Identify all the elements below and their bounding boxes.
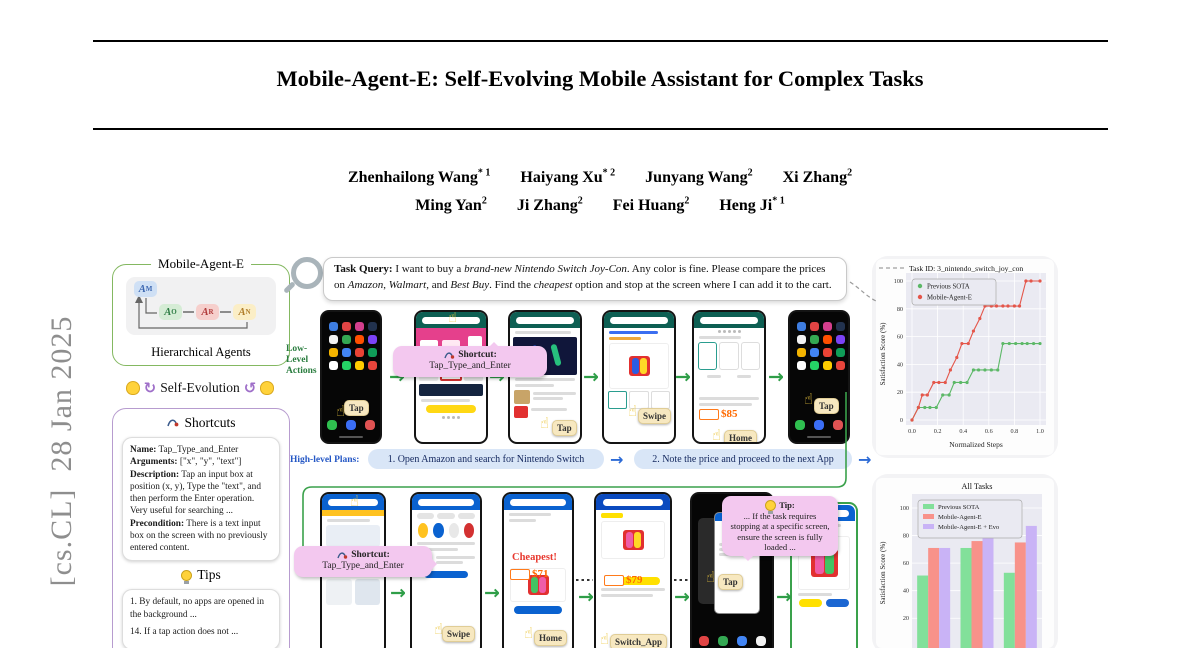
chart-title: All Tasks <box>962 482 993 491</box>
hand-pointer-icon <box>706 570 715 585</box>
app-icon-grid <box>322 312 380 374</box>
author: Junyang Wang2 <box>632 169 765 186</box>
dock-icon <box>833 420 843 430</box>
flow-arrow-icon <box>675 368 691 387</box>
bestbuy-header <box>596 494 670 510</box>
x-tick: 0.4 <box>959 428 967 435</box>
bestbuy-yellow-chip <box>601 513 623 518</box>
y-tick: 100 <box>900 505 909 512</box>
query-text-segment: . Find the <box>489 279 534 291</box>
price-highlight-box <box>510 569 530 580</box>
y-tick: 20 <box>903 615 909 622</box>
gesture-icon <box>443 350 455 361</box>
task-query-label: Task Query: <box>334 263 393 275</box>
phone-home-screen: Tap <box>320 310 382 444</box>
magnifier-icon <box>291 257 323 289</box>
agent-manager-badge: AM <box>134 281 157 297</box>
x-tick: 0.8 <box>1011 428 1019 435</box>
gesture-icon <box>166 417 179 429</box>
chart-title: Task ID: 3_nintendo_switch_joy_con <box>909 264 1023 273</box>
banner <box>326 525 380 547</box>
phone-home-screen: Tap <box>788 310 850 444</box>
hatching-chick-icon <box>260 381 274 395</box>
high-level-plans-label: High-level Plans: <box>290 455 359 465</box>
y-tick: 80 <box>903 533 909 540</box>
line-chart-figure: Previous SOTAMobile-Agent-E0.00.20.40.60… <box>876 259 1054 455</box>
satisfaction-line-chart: Previous SOTAMobile-Agent-E0.00.20.40.60… <box>876 259 1054 455</box>
blue-button <box>514 606 562 614</box>
amazon-header <box>510 312 580 328</box>
phone-amazon-home <box>414 310 488 444</box>
shortcuts-heading: Shortcuts <box>113 415 289 431</box>
filter-chips <box>417 513 475 519</box>
y-tick: 40 <box>903 588 909 595</box>
action-tag: Tap <box>814 398 839 414</box>
home-bar <box>339 436 362 438</box>
product-image <box>609 343 669 389</box>
phone-amazon-results: Tap <box>508 310 582 444</box>
task-query-box: Task Query: I want to buy a brand-new Ni… <box>323 257 847 301</box>
action-tag: Tap <box>344 400 369 416</box>
arxiv-sidebar-banner: [cs.CL] 28 Jan 2025 <box>45 251 79 648</box>
query-text-segment: brand-new Nintendo Switch Joy-Con <box>464 263 627 275</box>
tip-item: 14. If a tap action does not ... <box>130 626 272 638</box>
walmart-yellow-strip <box>322 510 384 516</box>
x-tick: 0.6 <box>985 428 993 435</box>
app-icon <box>368 335 377 344</box>
tips-card: 1. By default, no apps are opened in the… <box>122 589 280 648</box>
app-icon <box>823 322 832 331</box>
dock-icon <box>699 636 709 646</box>
legend-entry: Mobile-Agent-E <box>938 514 982 521</box>
shortcut-name: Tap_Type_and_Enter <box>300 561 426 572</box>
hand-pointer-icon <box>600 632 609 647</box>
query-text-segment: cheapest <box>534 279 572 291</box>
legend-entry: Mobile-Agent-E + Evo <box>938 524 1000 531</box>
cycle-arrow-icon <box>144 381 157 396</box>
framework-box: Mobile-Agent-E AM AO AR AN Hierarchical … <box>112 264 290 366</box>
x-tick: 0.0 <box>908 428 916 435</box>
self-evolution-row: Self-Evolution <box>112 380 288 396</box>
switcher-app-icons <box>692 636 772 646</box>
low-level-actions-label: Low- Level Actions <box>286 344 317 377</box>
app-icon <box>355 348 364 357</box>
query-text-segment: I want to buy a <box>395 263 464 275</box>
query-text-segment: option and stop at the screen where I ca… <box>572 279 831 291</box>
shortcut-bubble: Shortcut: Tap_Type_and_Enter <box>294 546 432 577</box>
author: Zhenhailong Wang* 1 <box>335 169 503 186</box>
plan-arrow-icon <box>610 452 623 468</box>
author: Ji Zhang2 <box>504 197 596 214</box>
flow-arrow-icon <box>578 588 594 607</box>
amazon-header <box>694 312 764 328</box>
plan-step-1: 1. Open Amazon and search for Nintendo S… <box>368 449 604 469</box>
lightbulb-icon <box>765 500 776 511</box>
hand-pointer-icon <box>540 416 549 431</box>
action-tag: Tap <box>718 574 743 590</box>
price-highlight-box <box>604 575 624 586</box>
legend-entry: Previous SOTA <box>938 504 980 511</box>
gesture-icon <box>336 550 348 561</box>
plan-arrow-icon <box>858 452 871 468</box>
query-text-segment: , and <box>426 279 450 291</box>
hand-pointer-icon <box>628 404 637 419</box>
lightbulb-icon <box>181 570 192 581</box>
amazon-header <box>604 312 674 328</box>
y-axis-label: Satisfaction Score (%) <box>879 322 887 386</box>
star-rating-line <box>609 337 641 340</box>
flow-arrow-icon <box>776 588 792 607</box>
dock-icon <box>718 636 728 646</box>
search-bar <box>603 499 664 506</box>
price-callout: $71 <box>510 568 549 580</box>
phone-amazon-price: $85 Home <box>692 310 766 444</box>
app-icon <box>355 322 364 331</box>
action-tag: Home <box>534 630 567 646</box>
x-tick: 1.0 <box>1036 428 1044 435</box>
app-icon <box>797 348 806 357</box>
x-axis-label: Normalized Steps <box>949 440 1003 449</box>
walmart-header <box>412 494 480 510</box>
product-title-line <box>609 331 658 334</box>
y-tick: 60 <box>903 560 909 567</box>
action-tag: Swipe <box>442 626 475 642</box>
walmart-header <box>504 494 572 510</box>
price-highlight-box <box>699 409 719 420</box>
framework-title: Mobile-Agent-E <box>151 256 251 272</box>
app-icon <box>368 322 377 331</box>
app-icon <box>355 361 364 370</box>
query-text-segment: Amazon <box>348 279 383 291</box>
y-tick: 0 <box>900 417 903 424</box>
phone-amazon-product: Swipe <box>602 310 676 444</box>
all-tasks-bar-chart: Previous SOTAMobile-Agent-EMobile-Agent-… <box>876 478 1054 648</box>
shortcut-name: Tap_Type_and_Enter <box>399 361 541 372</box>
tips-heading: Tips <box>113 567 289 583</box>
x-tick: 0.2 <box>934 428 942 435</box>
product-image <box>601 521 665 559</box>
hand-pointer-icon <box>336 404 345 419</box>
paper-title: Mobile-Agent-E: Self-Evolving Mobile Ass… <box>100 66 1100 92</box>
shortcut-bubble: Shortcut: Tap_Type_and_Enter <box>393 346 547 377</box>
app-icon <box>797 361 806 370</box>
app-icon <box>342 361 351 370</box>
hierarchical-agents-panel: AM AO AR AN <box>126 277 276 335</box>
query-text-segment: Walmart <box>389 279 427 291</box>
tip-item: 1. By default, no apps are opened in the… <box>130 596 272 621</box>
authors-line-2: Ming Yan2 Ji Zhang2 Fei Huang2 Heng Ji* … <box>100 196 1100 215</box>
tips-title: Tips <box>197 567 221 583</box>
dock-icon <box>814 420 824 430</box>
app-icon <box>368 348 377 357</box>
cycle-arrow-icon <box>244 381 257 396</box>
hierarchical-agents-caption: Hierarchical Agents <box>113 345 289 360</box>
app-icon <box>810 335 819 344</box>
shortcut-card: Name: Tap_Type_and_Enter Arguments: ["x"… <box>122 437 280 561</box>
y-tick: 20 <box>897 389 903 396</box>
hand-pointer-icon <box>524 626 533 641</box>
search-bar <box>510 499 566 506</box>
flow-arrow-icon <box>768 368 784 387</box>
app-icon <box>329 348 338 357</box>
app-icon <box>329 322 338 331</box>
app-icon <box>342 335 351 344</box>
thumbnail-row <box>608 391 670 409</box>
app-icon <box>823 348 832 357</box>
y-tick: 40 <box>897 361 903 368</box>
y-tick: 60 <box>897 334 903 341</box>
action-tag: Tap <box>552 420 577 436</box>
y-axis-label: Satisfaction Score (%) <box>879 541 887 605</box>
app-icon <box>836 361 845 370</box>
bar-chart-figure: Previous SOTAMobile-Agent-EMobile-Agent-… <box>876 478 1054 648</box>
horizontal-rule-top <box>93 40 1108 42</box>
flow-arrow-icon <box>484 584 500 603</box>
app-dock <box>790 420 848 430</box>
agent-reflector-badge: AR <box>196 304 219 320</box>
phone-bestbuy-product: $79 Switch_App <box>594 492 672 648</box>
search-bar <box>418 499 474 506</box>
action-tag: Switch_App <box>610 634 667 648</box>
cheapest-callout: Cheapest! <box>512 552 557 563</box>
price-callout: $79 <box>604 574 643 586</box>
dark-banner <box>419 384 483 396</box>
horizontal-rule-under-title <box>93 128 1108 130</box>
shortcuts-title: Shortcuts <box>184 415 235 431</box>
shortcuts-tips-box: Shortcuts Name: Tap_Type_and_Enter Argum… <box>112 408 290 648</box>
yellow-button <box>426 405 476 413</box>
related-items <box>698 342 760 370</box>
app-icon <box>810 322 819 331</box>
tip-text: ... If the task requires stopping at a s… <box>728 511 832 552</box>
dock-icon <box>327 420 337 430</box>
author: Ming Yan2 <box>402 197 500 214</box>
hand-pointer-icon <box>350 494 359 509</box>
dock-icon <box>756 636 766 646</box>
app-icon <box>368 361 377 370</box>
hand-pointer-icon <box>804 392 813 407</box>
action-tag: Swipe <box>638 408 671 424</box>
app-icon <box>836 335 845 344</box>
query-text-segment: Best Buy <box>450 279 489 291</box>
app-icon <box>810 361 819 370</box>
hand-pointer-icon <box>448 312 457 325</box>
tip-bubble: Tip: ... If the task requires stopping a… <box>722 496 838 556</box>
author: Haiyang Xu* 2 <box>507 169 628 186</box>
dock-icon <box>346 420 356 430</box>
action-buttons <box>799 599 849 607</box>
price-callout: $85 <box>699 408 738 420</box>
app-icon <box>342 348 351 357</box>
search-bar <box>516 317 573 324</box>
dock-icon <box>737 636 747 646</box>
legend-entry: Mobile-Agent-E <box>927 295 972 302</box>
app-icon <box>823 335 832 344</box>
app-icon <box>797 335 806 344</box>
flow-arrow-icon <box>583 368 599 387</box>
app-icon-grid <box>790 312 848 374</box>
self-evolution-label: Self-Evolution <box>160 380 240 396</box>
app-icon <box>823 361 832 370</box>
y-tick: 100 <box>894 278 903 285</box>
legend-entry: Previous SOTA <box>927 284 970 291</box>
app-icon <box>329 361 338 370</box>
agent-notetaker-badge: AN <box>233 304 256 320</box>
action-tag: Home <box>724 430 757 442</box>
dock-icon <box>365 420 375 430</box>
chick-icon <box>126 381 140 395</box>
app-icon <box>342 322 351 331</box>
author: Fei Huang2 <box>600 197 703 214</box>
flow-arrow-icon <box>674 588 690 607</box>
result-item <box>514 390 576 404</box>
search-bar <box>700 317 757 324</box>
hand-pointer-icon <box>712 428 721 442</box>
app-icon <box>797 322 806 331</box>
phone-walmart-product: Cheapest! $71 Home <box>502 492 574 648</box>
plan-step-2: 2. Note the price and proceed to the nex… <box>634 449 852 469</box>
home-bar <box>807 436 830 438</box>
author: Heng Ji* 1 <box>706 197 797 214</box>
category-circles <box>418 523 474 538</box>
authors-line-1: Zhenhailong Wang* 1 Haiyang Xu* 2 Junyan… <box>100 168 1100 187</box>
y-tick: 80 <box>897 306 903 313</box>
dock-icon <box>795 420 805 430</box>
flow-arrow-icon <box>390 584 406 603</box>
app-icon <box>355 335 364 344</box>
app-icon <box>836 322 845 331</box>
app-icon <box>836 348 845 357</box>
search-bar <box>610 317 667 324</box>
app-dock <box>322 420 380 430</box>
app-icon <box>810 348 819 357</box>
author: Xi Zhang2 <box>770 169 865 186</box>
app-icon <box>329 335 338 344</box>
agent-operator-badge: AO <box>159 304 182 320</box>
